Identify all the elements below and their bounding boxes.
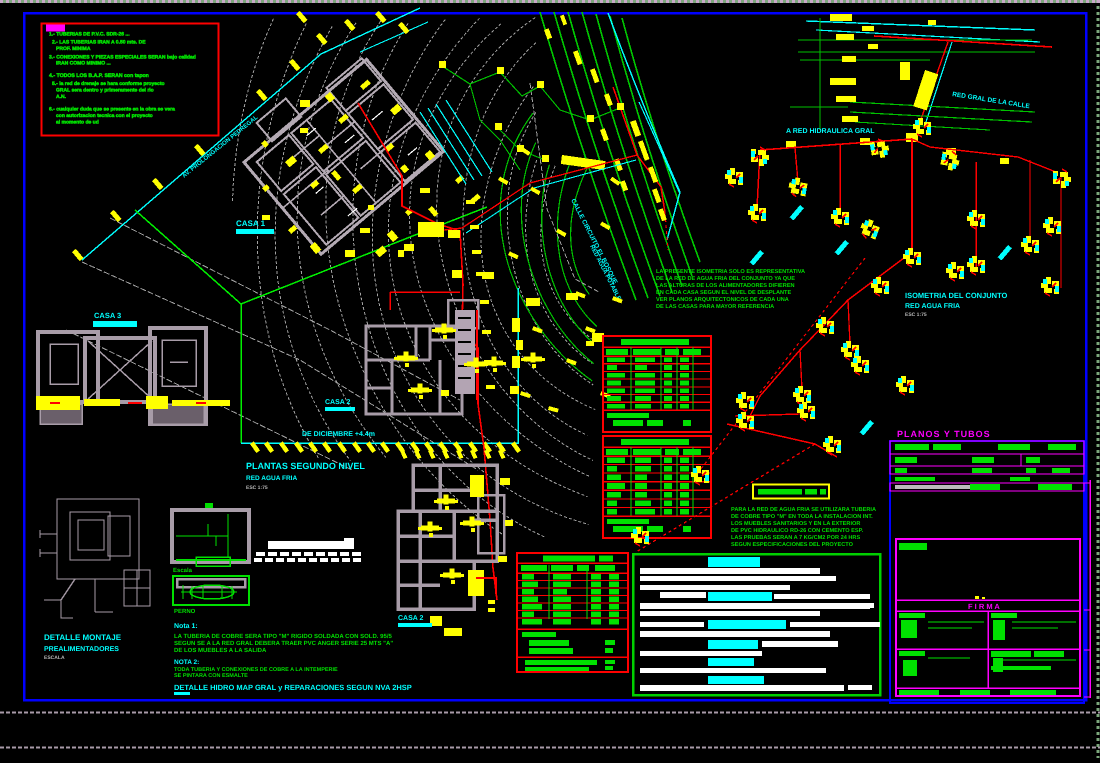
svg-text:DE LA RED DE AGUA FRIA DEL CON: DE LA RED DE AGUA FRIA DEL CONJUNTO YA Q… (656, 276, 795, 282)
svg-text:ESC 1:75: ESC 1:75 (246, 485, 268, 491)
svg-text:DE COBRE TIPO "M" EN TODA LA I: DE COBRE TIPO "M" EN TODA LA INSTALACION… (731, 514, 873, 520)
svg-text:LOS MUEBLES SANITARIOS Y EN LA: LOS MUEBLES SANITARIOS Y EN LA EXTERIOR (731, 521, 860, 527)
svg-text:CASA 3: CASA 3 (94, 311, 121, 320)
svg-text:DE PVC HIDRAULICO RD-26 CON CE: DE PVC HIDRAULICO RD-26 CON CEMENTO ESP. (731, 528, 864, 534)
svg-text:F I R M A: F I R M A (968, 602, 1000, 611)
svg-text:SEGUN ESPECIFICACIONES DEL PRO: SEGUN ESPECIFICACIONES DEL PROYECTO (731, 542, 854, 548)
svg-text:CASA 2: CASA 2 (325, 399, 351, 406)
svg-text:SEGUN SE A LA RED GRAL DEBERA: SEGUN SE A LA RED GRAL DEBERA TRAER PVC … (174, 640, 393, 647)
svg-text:al momento de ud: al momento de ud (56, 120, 99, 126)
svg-text:5.- la red de drenaje se har: 5.- la red de drenaje se hara conforme p… (52, 81, 165, 87)
svg-text:PLANOS Y TUBOS: PLANOS Y TUBOS (897, 429, 991, 439)
svg-text:IRAN COMO MINIMO ...: IRAN COMO MINIMO ... (56, 61, 111, 67)
svg-text:4.- TODOS LOS B.A.P. SERAN: 4.- TODOS LOS B.A.P. SERAN con tapon (49, 73, 149, 79)
svg-text:LAS ALTURAS DE LOS ALIMENTADOR: LAS ALTURAS DE LOS ALIMENTADORES DIFIERE… (656, 283, 795, 289)
svg-text:ESC 1:75: ESC 1:75 (905, 312, 927, 318)
svg-text:DE LOS MUEBLES A LA SALID: DE LOS MUEBLES A LA SALIDA (174, 647, 267, 654)
svg-text:LAS PRUEBAS SERAN A 7 KG/CM2 P: LAS PRUEBAS SERAN A 7 KG/CM2 POR 24 HRS (731, 534, 860, 541)
svg-text:PREALIMENTADORES: PREALIMENTADORES (44, 646, 119, 653)
svg-text:Escala: Escala (173, 567, 193, 574)
svg-text:VER PLANOS ARQUITECTONICOS DE: VER PLANOS ARQUITECTONICOS DE CADA UNA (656, 297, 789, 303)
svg-text:Nota 1:: Nota 1: (174, 623, 198, 630)
svg-text:LA TUBERIA DE COBRE SERA TIPO: LA TUBERIA DE COBRE SERA TIPO "M" RIGIDO… (174, 633, 392, 640)
svg-text:PLANTAS SEGUNDO NIVEL: PLANTAS SEGUNDO NIVEL (246, 461, 365, 471)
svg-text:DE LAS CASAS PARA MAYOR REF: DE LAS CASAS PARA MAYOR REFERENCIA (656, 304, 774, 310)
svg-text:RED AGUA FRIA: RED AGUA FRIA (246, 475, 297, 482)
svg-text:DE DICIEMBRE +4.4m: DE DICIEMBRE +4.4m (302, 431, 375, 438)
svg-text:DETALLE HIDRO MAP GRAL y: DETALLE HIDRO MAP GRAL y REPARACIONES SE… (174, 683, 412, 692)
svg-text:6.- cualquier duda que se: 6.- cualquier duda que se presente en la… (49, 107, 175, 113)
svg-text:PERNO: PERNO (174, 608, 196, 615)
svg-text:con autorizacion tecnica co: con autorizacion tecnica con el proyecto (56, 113, 153, 119)
svg-text:ESCALA: ESCALA (44, 655, 65, 661)
svg-text:NOTA 2:: NOTA 2: (174, 659, 199, 666)
svg-text:SE PINTARA CON ESMALTE: SE PINTARA CON ESMALTE (174, 673, 248, 679)
svg-text:LA PRESENTE ISOMETRIA SOLO ES: LA PRESENTE ISOMETRIA SOLO ES REPRESENTA… (656, 269, 805, 275)
svg-text:GRAL sera dentro y primera: GRAL sera dentro y primeramente del rio (56, 88, 154, 94)
svg-text:EN CADA CASA SEGUN EL NIVEL DE: EN CADA CASA SEGUN EL NIVEL DE DESPLANTE (656, 290, 791, 296)
svg-text:2.- LAS TUBERIAS IRAN A 0.50 m: 2.- LAS TUBERIAS IRAN A 0.50 mts. DE (52, 40, 146, 46)
svg-text:PROF. MINIMA: PROF. MINIMA (56, 46, 91, 52)
svg-text:1.- TUBERIAS DE P.V.C. SDR-26: 1.- TUBERIAS DE P.V.C. SDR-26 ... (49, 32, 130, 38)
svg-text:RED AGUA FRIA: RED AGUA FRIA (905, 303, 960, 310)
svg-text:A RED HIDRAULICA GRAL: A RED HIDRAULICA GRAL (786, 128, 875, 135)
svg-text:CASA 2: CASA 2 (398, 615, 424, 622)
svg-text:ISOMETRIA DEL CONJUNTO: ISOMETRIA DEL CONJUNTO (905, 291, 1008, 300)
svg-text:CASA 1: CASA 1 (236, 219, 266, 228)
svg-text:PARA LA RED DE AGUA FRIA SE UT: PARA LA RED DE AGUA FRIA SE UTILIZARA TU… (731, 507, 876, 513)
svg-text:A.N.: A.N. (56, 94, 67, 100)
svg-text:DETALLE MONTAJE: DETALLE MONTAJE (44, 633, 122, 642)
